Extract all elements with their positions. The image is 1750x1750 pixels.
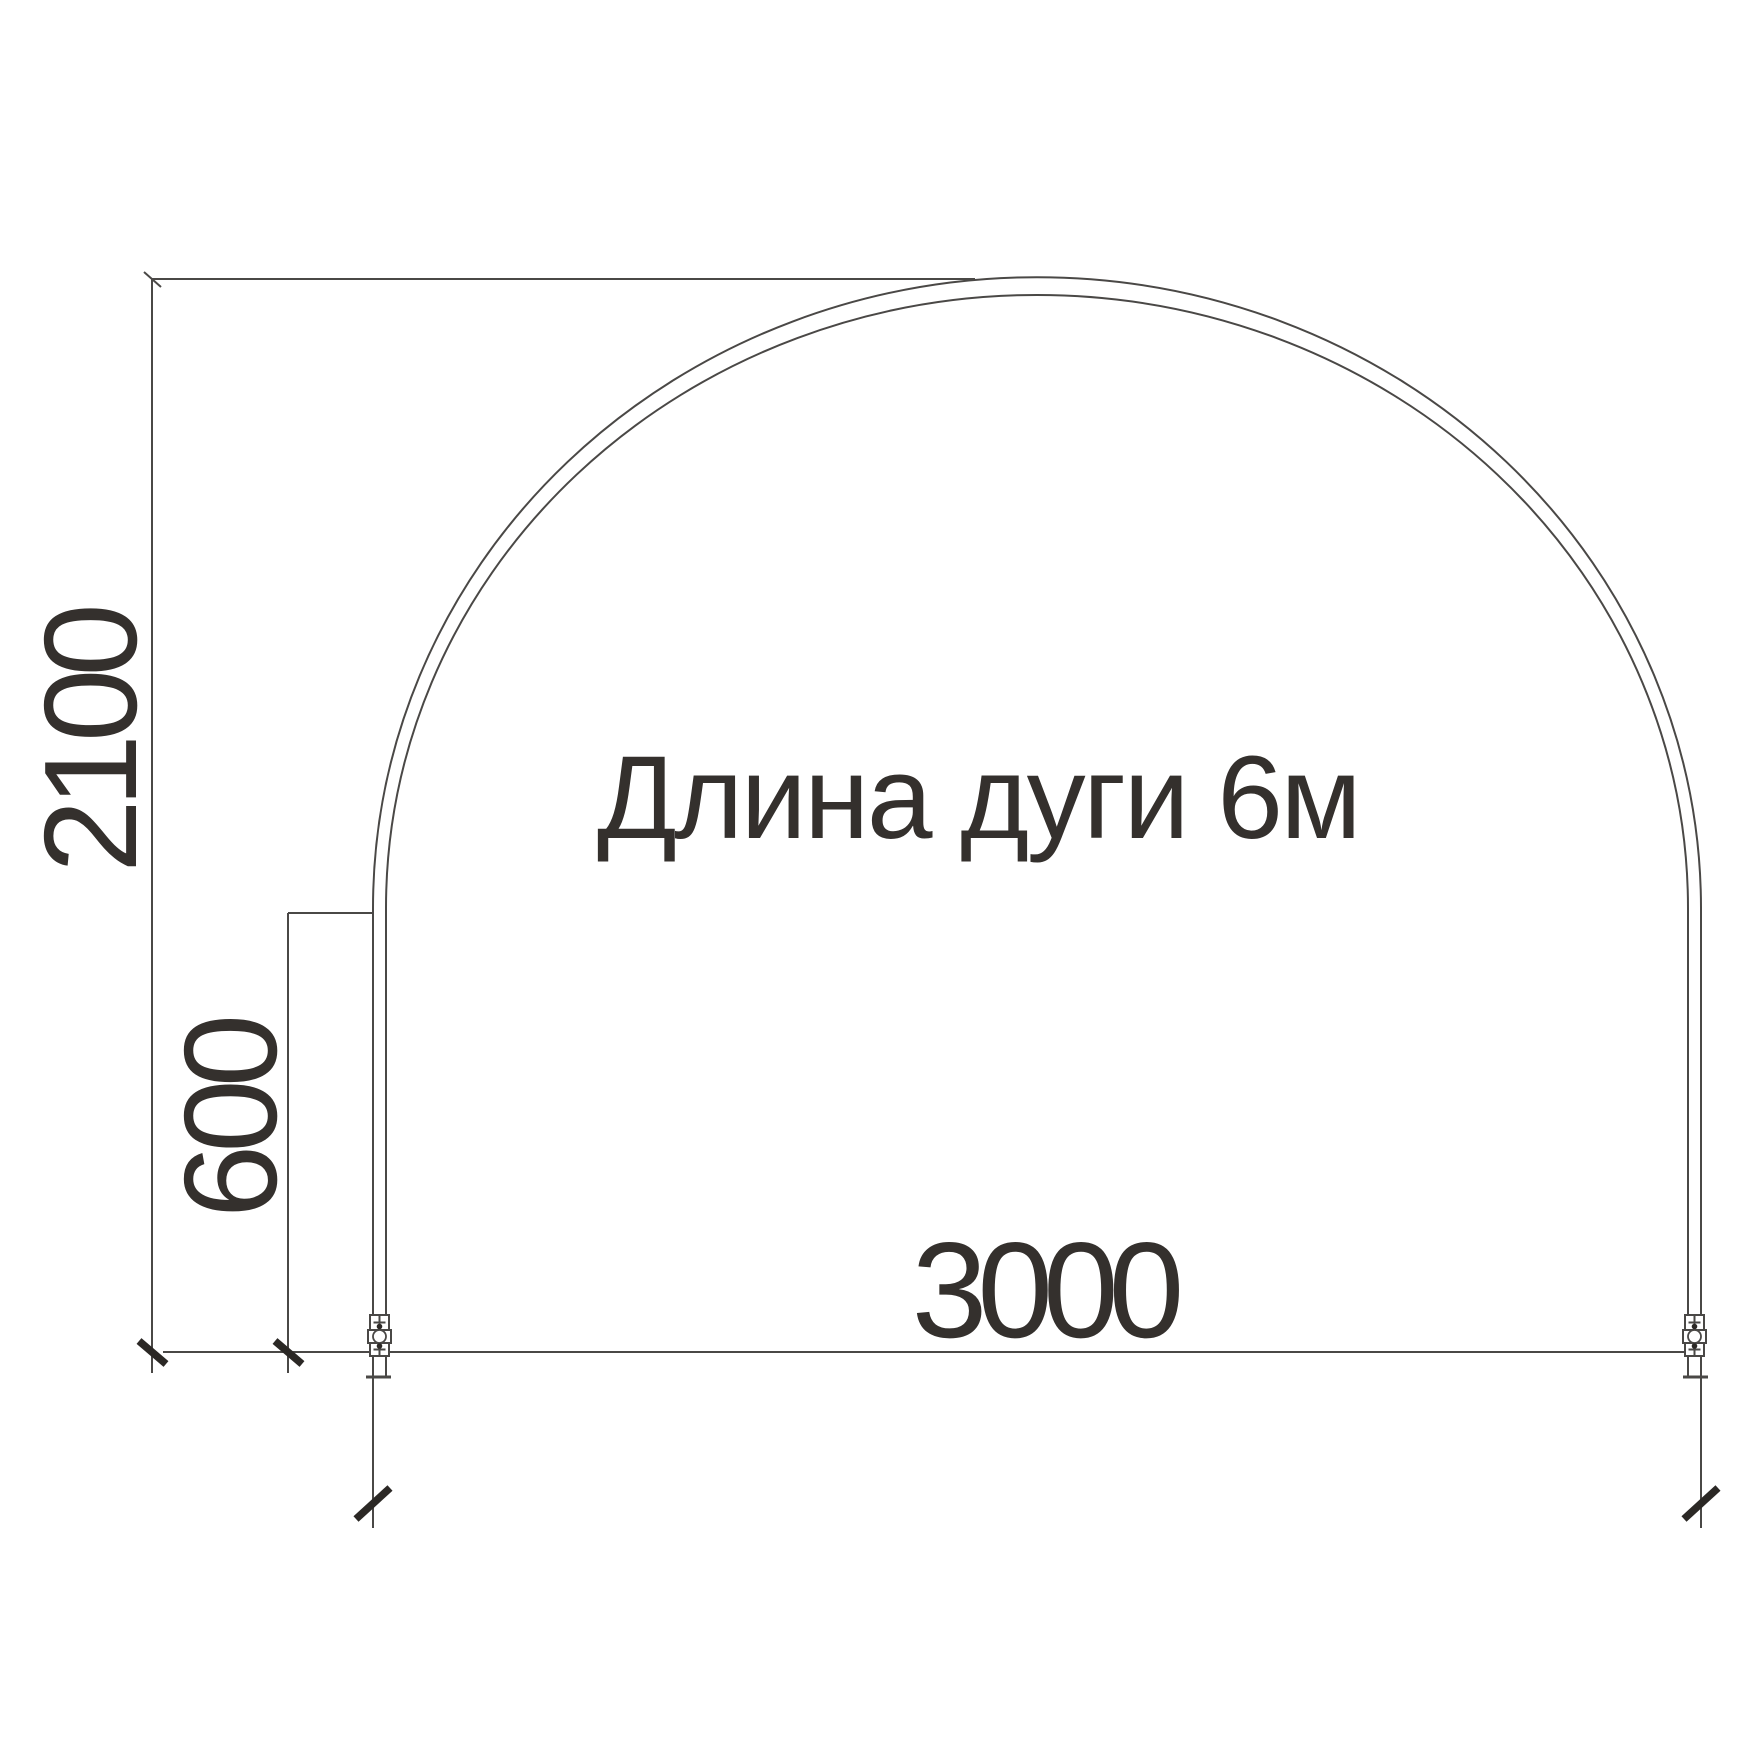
arc-length-label: Длина дуги 6м bbox=[597, 732, 1359, 864]
left-clamp-bottom-screw-dot bbox=[377, 1343, 383, 1349]
left-clamp-top-screw-dot bbox=[377, 1324, 383, 1330]
dimension-width-label: 3000 bbox=[912, 1214, 1180, 1366]
greenhouse-arch-technical-drawing: 2100 600 3000 Длина дуги 6м bbox=[0, 0, 1750, 1750]
drawing-canvas: 2100 600 3000 Длина дуги 6м bbox=[0, 0, 1750, 1750]
dimension-height-label: 2100 bbox=[17, 608, 164, 873]
right-clamp-bolt-hole bbox=[1688, 1330, 1701, 1343]
right-clamp-detail bbox=[1683, 1315, 1706, 1356]
labels-group: 2100 600 3000 Длина дуги 6м bbox=[17, 608, 1359, 1366]
right-clamp-bottom-screw-dot bbox=[1692, 1343, 1698, 1349]
dimension-ticks-group bbox=[139, 1341, 1718, 1519]
left-clamp-detail bbox=[368, 1315, 391, 1356]
right-clamp-top-screw-dot bbox=[1692, 1324, 1698, 1330]
dimension-leg-label: 600 bbox=[157, 1018, 304, 1218]
left-clamp-bolt-hole bbox=[373, 1330, 386, 1343]
